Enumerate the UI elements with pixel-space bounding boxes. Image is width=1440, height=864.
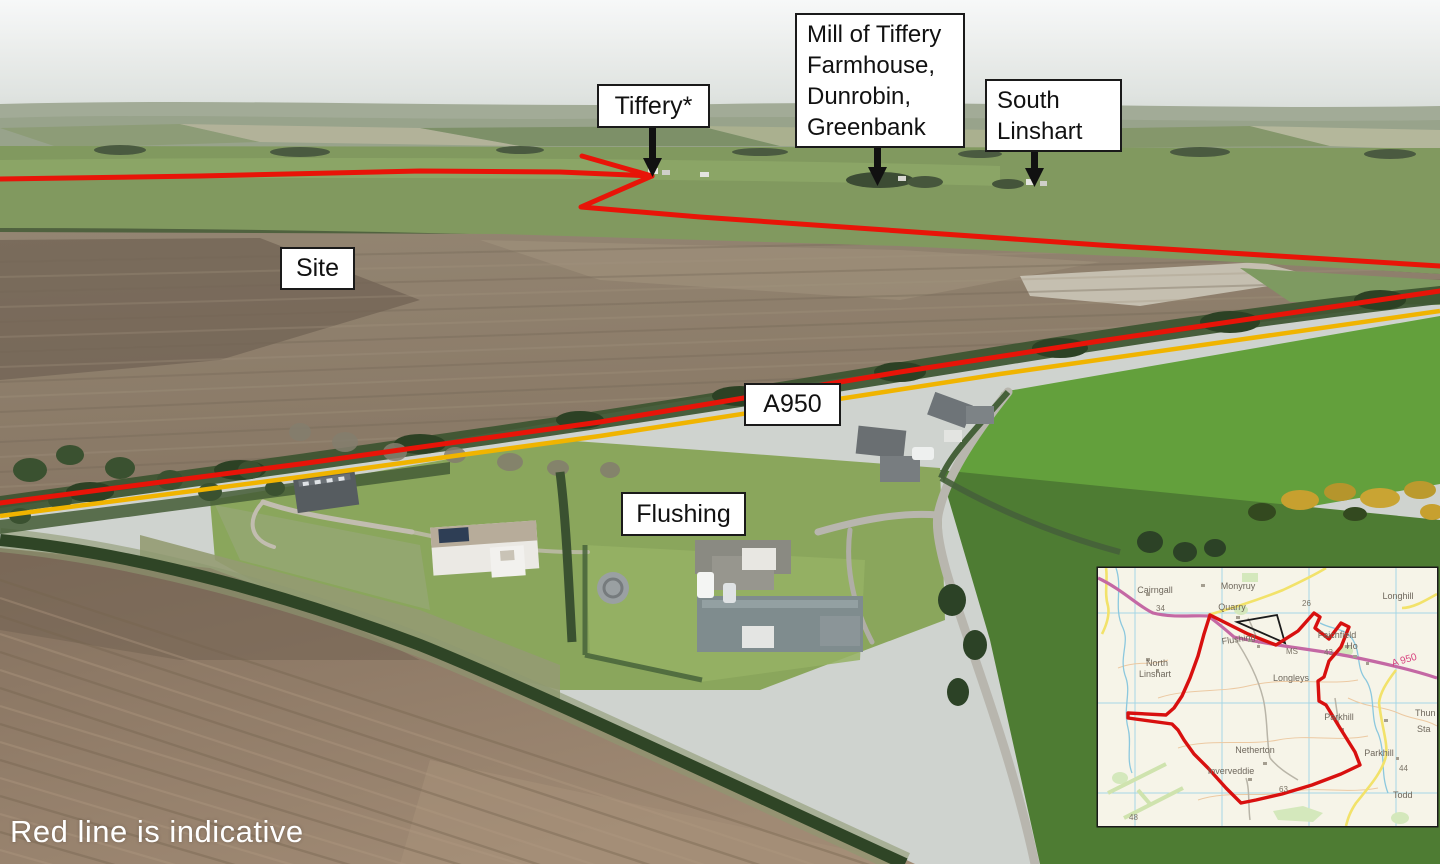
callout-site: Site (280, 247, 355, 290)
callout-a950: A950 (744, 383, 841, 426)
map-label-thun: Thun (1415, 708, 1436, 718)
map-label-longleys: Longleys (1273, 673, 1310, 683)
callout-south-linshart: South Linshart (985, 79, 1122, 152)
map-num-43: 43 (1324, 648, 1333, 657)
callout-mill-line4: Greenbank (807, 112, 926, 143)
map-label-linshart: Linshart (1139, 669, 1172, 679)
callout-tiffery-text: Tiffery* (615, 92, 693, 121)
map-label-quarry: Quarry (1218, 602, 1246, 612)
aerial-photo: Cairngall 34 Monyruy Quarry 26 Longhill … (0, 0, 1440, 864)
inset-map: Cairngall 34 Monyruy Quarry 26 Longhill … (1097, 567, 1439, 828)
map-label-longhill: Longhill (1382, 591, 1413, 601)
map-num-63: 63 (1279, 785, 1288, 794)
map-label-parkhill-upper: Parkhill (1324, 712, 1354, 722)
callout-flushing-text: Flushing (636, 500, 731, 529)
callout-mill-of-tiffery: Mill of Tiffery Farmhouse, Dunrobin, Gre… (795, 13, 965, 148)
map-label-north: North (1146, 658, 1168, 668)
map-label-netherton: Netherton (1235, 745, 1275, 755)
map-label-ms: MS (1286, 647, 1298, 656)
map-num-48: 48 (1129, 813, 1138, 822)
map-label-faichfield: Faichfield (1318, 630, 1357, 640)
callout-tiffery: Tiffery* (597, 84, 710, 128)
map-label-monyruy: Monyruy (1221, 581, 1256, 591)
map-label-sta: Sta (1417, 724, 1431, 734)
callout-flushing: Flushing (621, 492, 746, 536)
caption-red-line-indicative: Red line is indicative (10, 814, 304, 850)
map-label-cairngall: Cairngall (1137, 585, 1173, 595)
annotated-aerial-figure: Cairngall 34 Monyruy Quarry 26 Longhill … (0, 0, 1440, 864)
callout-south-line1: South (997, 85, 1060, 116)
callout-mill-line2: Farmhouse, (807, 50, 935, 81)
callout-a950-text: A950 (763, 390, 821, 419)
map-label-parkhill-lower: Parkhill (1364, 748, 1394, 758)
map-label-inverveddie: Inverveddie (1208, 766, 1255, 776)
callout-mill-line3: Dunrobin, (807, 81, 911, 112)
map-label-ho: Ho (1346, 641, 1358, 651)
callout-mill-line1: Mill of Tiffery (807, 19, 941, 50)
map-num-26: 26 (1302, 599, 1311, 608)
callout-site-text: Site (296, 254, 339, 283)
map-num-34: 34 (1156, 604, 1165, 613)
map-num-44: 44 (1399, 764, 1408, 773)
callout-south-line2: Linshart (997, 116, 1082, 147)
map-label-todd: Todd (1393, 790, 1413, 800)
